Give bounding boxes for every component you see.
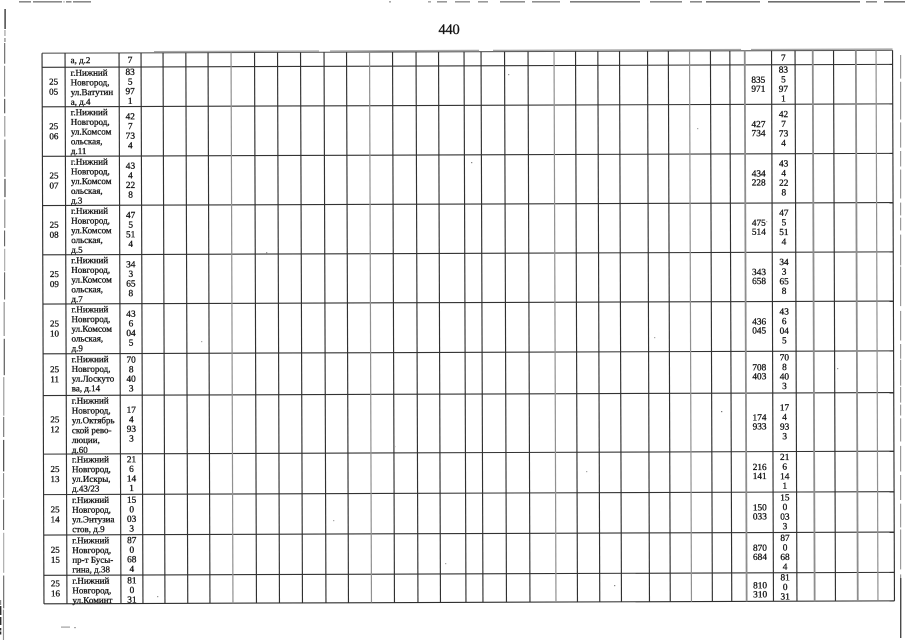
svg-text:4: 4 [781,139,786,149]
svg-text:15: 15 [51,555,61,565]
svg-text:8: 8 [128,191,133,201]
svg-text:8: 8 [781,188,786,198]
svg-text:стов, д.9: стов, д.9 [72,524,105,534]
svg-text:а, д.4: а, д.4 [71,97,91,107]
svg-text:г.Нижний: г.Нижний [71,107,108,117]
svg-text:08: 08 [50,230,60,240]
svg-text:ул.Искры,: ул.Искры, [72,474,111,484]
svg-text:933: 933 [753,422,767,432]
svg-text:7: 7 [128,56,133,66]
svg-text:12: 12 [50,424,59,434]
svg-text:ул.Комсом: ул.Комсом [71,126,112,136]
svg-text:5: 5 [782,218,787,228]
svg-text:ул.Комсом: ул.Комсом [71,176,112,186]
svg-text:4: 4 [130,565,135,575]
svg-text:ул.Октябрь: ул.Октябрь [72,415,115,425]
svg-text:440: 440 [439,22,460,38]
svg-text:Новгород,: Новгород, [72,585,111,595]
svg-text:г.Нижний: г.Нижний [72,354,109,364]
svg-text:8: 8 [782,363,787,373]
svg-text:3: 3 [129,435,134,445]
svg-text:1: 1 [782,482,787,492]
svg-text:Новгород,: Новгород, [72,464,111,474]
svg-text:г.Нижний: г.Нижний [72,454,109,464]
svg-text:65: 65 [779,277,789,287]
svg-text:а, д.2: а, д.2 [71,55,91,65]
svg-text:6: 6 [129,319,134,329]
svg-text:0: 0 [130,586,135,596]
svg-text:17: 17 [127,406,137,416]
svg-text:ул.Энтузиа: ул.Энтузиа [72,514,114,524]
svg-text:г.Нижний: г.Нижний [71,157,108,167]
svg-text:Новгород,: Новгород, [72,505,111,515]
svg-text:68: 68 [780,553,790,563]
svg-text:47: 47 [126,211,136,221]
svg-text:15: 15 [780,493,790,503]
svg-text:1: 1 [781,95,786,105]
svg-text:25: 25 [50,220,60,230]
svg-text:д.7: д.7 [71,294,83,304]
svg-text:31: 31 [781,593,791,603]
svg-text:ва, д.14: ва, д.14 [72,383,101,393]
svg-text:43: 43 [126,310,136,320]
svg-text:31: 31 [127,596,137,606]
svg-text:г.Нижний: г.Нижний [71,255,108,265]
svg-text:ольская,: ольская, [71,136,103,146]
svg-text:43: 43 [779,160,789,170]
svg-text:0: 0 [783,503,788,513]
svg-text:16: 16 [51,588,61,598]
svg-text:пр-т Бусы-: пр-т Бусы- [72,555,113,565]
svg-text:25: 25 [49,170,59,180]
svg-text:87: 87 [780,534,790,544]
svg-text:25: 25 [51,545,61,555]
svg-text:7: 7 [781,120,786,130]
svg-text:73: 73 [126,132,136,142]
svg-text:403: 403 [752,372,766,382]
svg-text:ольская,: ольская, [72,333,104,343]
svg-text:04: 04 [126,329,136,339]
svg-text:03: 03 [780,513,790,523]
svg-text:Новгород,: Новгород, [71,215,110,225]
svg-text:4: 4 [129,415,134,425]
svg-text:93: 93 [780,423,790,433]
svg-text:6: 6 [782,463,787,473]
svg-text:Новгород,: Новгород, [72,545,111,555]
svg-text:ской рево-: ской рево- [72,425,112,435]
svg-text:ул.Ватутин: ул.Ватутин [71,87,114,97]
svg-text:Новгород,: Новгород, [71,314,110,324]
svg-text:04: 04 [780,327,790,337]
svg-text:83: 83 [779,66,789,76]
svg-text:43: 43 [780,308,790,318]
svg-text:гина, д.38: гина, д.38 [72,564,110,574]
svg-text:5: 5 [781,75,786,85]
svg-text:г.Нижний: г.Нижний [72,395,109,405]
svg-text:4: 4 [128,171,133,181]
svg-text:228: 228 [752,179,766,189]
svg-text:ул.Коминт: ул.Коминт [72,595,112,605]
svg-text:70: 70 [780,353,790,363]
svg-text:17: 17 [780,403,790,413]
svg-text:83: 83 [125,68,135,78]
svg-text:65: 65 [126,280,136,290]
svg-text:21: 21 [127,455,137,465]
svg-text:4: 4 [128,240,133,250]
svg-text:15: 15 [127,496,137,506]
svg-text:05: 05 [49,87,59,97]
svg-text:ул.Комсом: ул.Комсом [71,274,112,284]
svg-text:34: 34 [126,260,136,270]
svg-text:ул.Комсом: ул.Комсом [71,324,112,334]
svg-text:97: 97 [779,85,789,95]
svg-text:25: 25 [50,414,60,424]
svg-text:43: 43 [126,162,136,172]
svg-text:73: 73 [779,129,789,139]
svg-text:д.5: д.5 [71,245,83,255]
svg-text:51: 51 [126,230,136,240]
svg-text:Новгород,: Новгород, [72,364,111,374]
svg-text:09: 09 [50,279,60,289]
svg-text:3: 3 [128,270,133,280]
svg-text:д.43/23: д.43/23 [72,484,100,494]
svg-text:03: 03 [127,515,137,525]
svg-text:25: 25 [50,269,60,279]
svg-text:045: 045 [752,327,766,337]
svg-text:3: 3 [129,525,134,535]
svg-text:0: 0 [783,583,788,593]
svg-text:5: 5 [128,221,133,231]
svg-text:734: 734 [752,129,766,139]
svg-text:07: 07 [49,180,59,190]
svg-text:3: 3 [129,384,134,394]
svg-text:г.Нижний: г.Нижний [71,304,108,314]
svg-text:7: 7 [781,54,786,64]
svg-text:3: 3 [782,432,787,442]
svg-text:ольская,: ольская, [71,235,103,245]
svg-text:3: 3 [782,268,787,278]
svg-text:21: 21 [780,453,790,463]
svg-text:0: 0 [129,505,134,515]
svg-text:Новгород,: Новгород, [71,166,110,176]
svg-text:34: 34 [779,258,789,268]
svg-text:514: 514 [752,228,766,238]
svg-text:4: 4 [783,563,788,573]
svg-text:6: 6 [782,317,787,327]
svg-text:7: 7 [128,122,133,132]
svg-text:22: 22 [779,179,789,189]
svg-text:033: 033 [753,512,767,522]
svg-text:81: 81 [780,573,790,583]
svg-text:д.9: д.9 [72,343,84,353]
svg-text:3: 3 [783,522,788,532]
svg-text:ул.Комсом: ул.Комсом [71,225,112,235]
svg-text:г.Нижний: г.Нижний [72,576,109,586]
svg-text:310: 310 [753,590,767,600]
svg-text:Новгород,: Новгород, [71,117,110,127]
svg-text:4: 4 [128,141,133,151]
svg-text:3: 3 [782,382,787,392]
svg-text:1: 1 [128,97,133,107]
svg-text:25: 25 [49,121,59,131]
svg-text:42: 42 [126,112,136,122]
svg-text:г.Нижний: г.Нижний [71,68,108,78]
svg-text:ул.Лоскуто: ул.Лоскуто [72,373,115,383]
svg-text:25: 25 [50,464,60,474]
svg-text:5: 5 [129,339,134,349]
svg-text:971: 971 [751,85,765,95]
svg-text:Новгород,: Новгород, [72,405,111,415]
svg-text:141: 141 [753,472,767,482]
svg-text:1: 1 [129,484,134,494]
svg-text:г.Нижний: г.Нижний [72,495,109,505]
svg-text:8: 8 [782,287,787,297]
svg-text:ольская,: ольская, [71,284,103,294]
svg-text:Новгород,: Новгород, [71,265,110,275]
svg-text:4: 4 [782,238,787,248]
svg-text:70: 70 [126,356,136,366]
svg-text:10: 10 [50,328,60,338]
svg-text:93: 93 [127,425,137,435]
svg-text:5: 5 [782,336,787,346]
svg-text:г.Нижний: г.Нижний [71,206,108,216]
svg-text:11: 11 [50,374,59,384]
svg-text:81: 81 [127,576,137,586]
svg-text:д.60: д.60 [72,445,88,455]
svg-text:6: 6 [129,465,134,475]
svg-text:25: 25 [51,578,61,588]
svg-text:14: 14 [51,514,61,524]
svg-text:4: 4 [782,413,787,423]
svg-text:люции,: люции, [72,435,100,445]
svg-text:22: 22 [126,181,136,191]
svg-text:684: 684 [753,553,767,563]
svg-text:42: 42 [779,110,789,120]
svg-text:97: 97 [126,87,136,97]
svg-text:51: 51 [779,228,789,238]
svg-text:5: 5 [128,78,133,88]
svg-text:25: 25 [51,504,61,514]
svg-text:8: 8 [129,289,134,299]
svg-text:47: 47 [779,209,789,219]
svg-text:Новгород,: Новгород, [71,77,110,87]
svg-text:87: 87 [127,536,137,546]
svg-text:06: 06 [49,131,59,141]
svg-text:4: 4 [781,169,786,179]
svg-text:д.11: д.11 [71,146,87,156]
svg-text:25: 25 [50,318,60,328]
svg-text:ольская,: ольская, [71,186,103,196]
svg-text:8: 8 [129,365,134,375]
svg-text:658: 658 [752,277,766,287]
svg-text:13: 13 [51,474,61,484]
svg-text:68: 68 [127,555,137,565]
svg-text:25: 25 [50,364,60,374]
svg-text:д.3: д.3 [71,195,83,205]
svg-text:г.Нижний: г.Нижний [72,535,109,545]
svg-text:25: 25 [49,77,59,87]
